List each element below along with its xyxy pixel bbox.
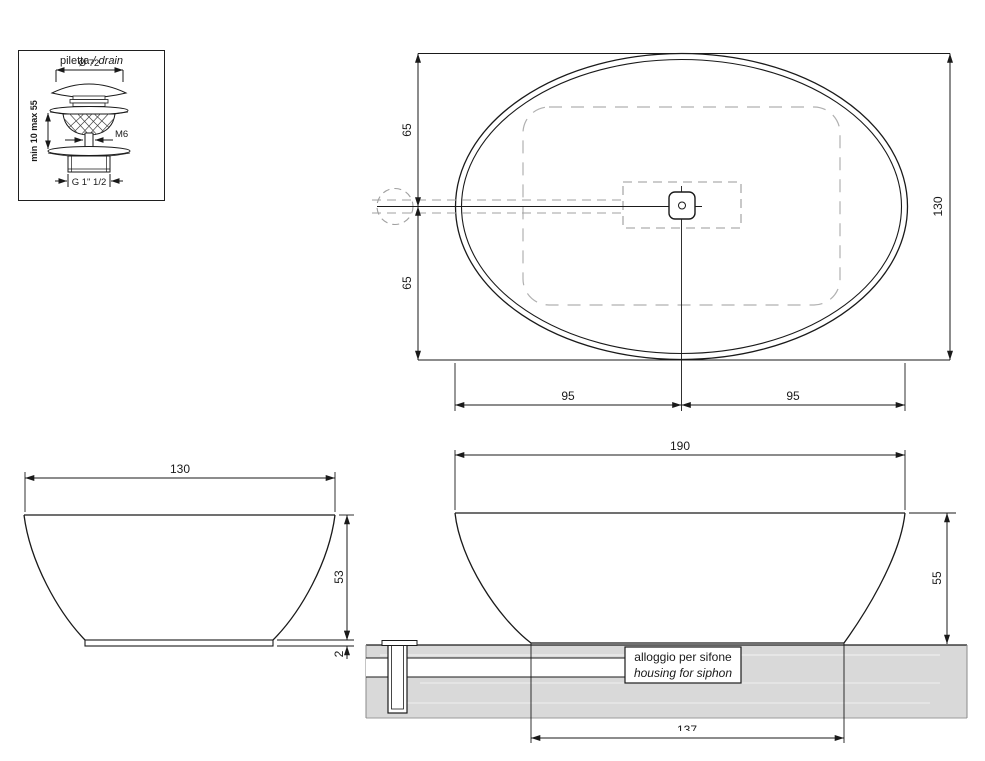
dim-section-height: 55: [930, 571, 944, 585]
drain-diameter-dim: Ø 72: [56, 58, 123, 82]
plan-centerlines: [377, 186, 702, 411]
drain-detail-box: piletta / drain Ø 72: [18, 50, 165, 201]
section-view: 190 55 alloggio per sifone housing for s…: [360, 430, 985, 761]
drain-lower-flange: [48, 147, 130, 158]
dim-plan-right-half: 95: [786, 389, 800, 403]
drain-threaded-stem: [85, 133, 93, 148]
dim-plan-left-half: 95: [561, 389, 575, 403]
technical-drawing-sheet: piletta / drain Ø 72: [0, 0, 985, 761]
section-top-extensions: [455, 450, 956, 513]
drain-detail-drawing: Ø 72: [19, 51, 163, 199]
clamp-range-dim: min 10 max 55: [29, 100, 48, 162]
thread-g-dim: G 1" 1/2: [55, 174, 123, 188]
dim-section-width: 190: [670, 439, 690, 453]
dim-side-height: 53: [332, 570, 346, 584]
dim-plan-total-height: 130: [931, 196, 945, 216]
dim-side-width: 130: [170, 462, 190, 476]
siphon-label-line2: housing for siphon: [634, 666, 732, 680]
basin-side-profile: [24, 515, 335, 646]
basin-section-profile: [455, 513, 905, 643]
dim-drain-diameter: Ø 72: [79, 58, 100, 69]
drain-threaded-body: [68, 156, 110, 172]
siphon-label-line1: alloggio per sifone: [634, 650, 732, 664]
drain-cap: [52, 84, 126, 107]
dim-plan-bottom-half: 65: [400, 276, 414, 290]
drain-opening: [669, 192, 695, 219]
siphon-label-box: alloggio per sifone housing for siphon: [625, 647, 741, 683]
side-view: 130 53 2: [0, 440, 360, 690]
dim-clamp-range: min 10 max 55: [29, 100, 39, 162]
side-extension-lines: [25, 472, 354, 646]
dim-side-base-thickness: 2: [332, 650, 346, 657]
dim-plan-top-half: 65: [400, 123, 414, 137]
label-thread-g: G 1" 1/2: [72, 177, 107, 188]
plan-view: 65 65 130 95 95: [360, 30, 985, 425]
label-thread-m6: M6: [115, 129, 128, 140]
dim-section-base-width: 137: [677, 723, 697, 737]
